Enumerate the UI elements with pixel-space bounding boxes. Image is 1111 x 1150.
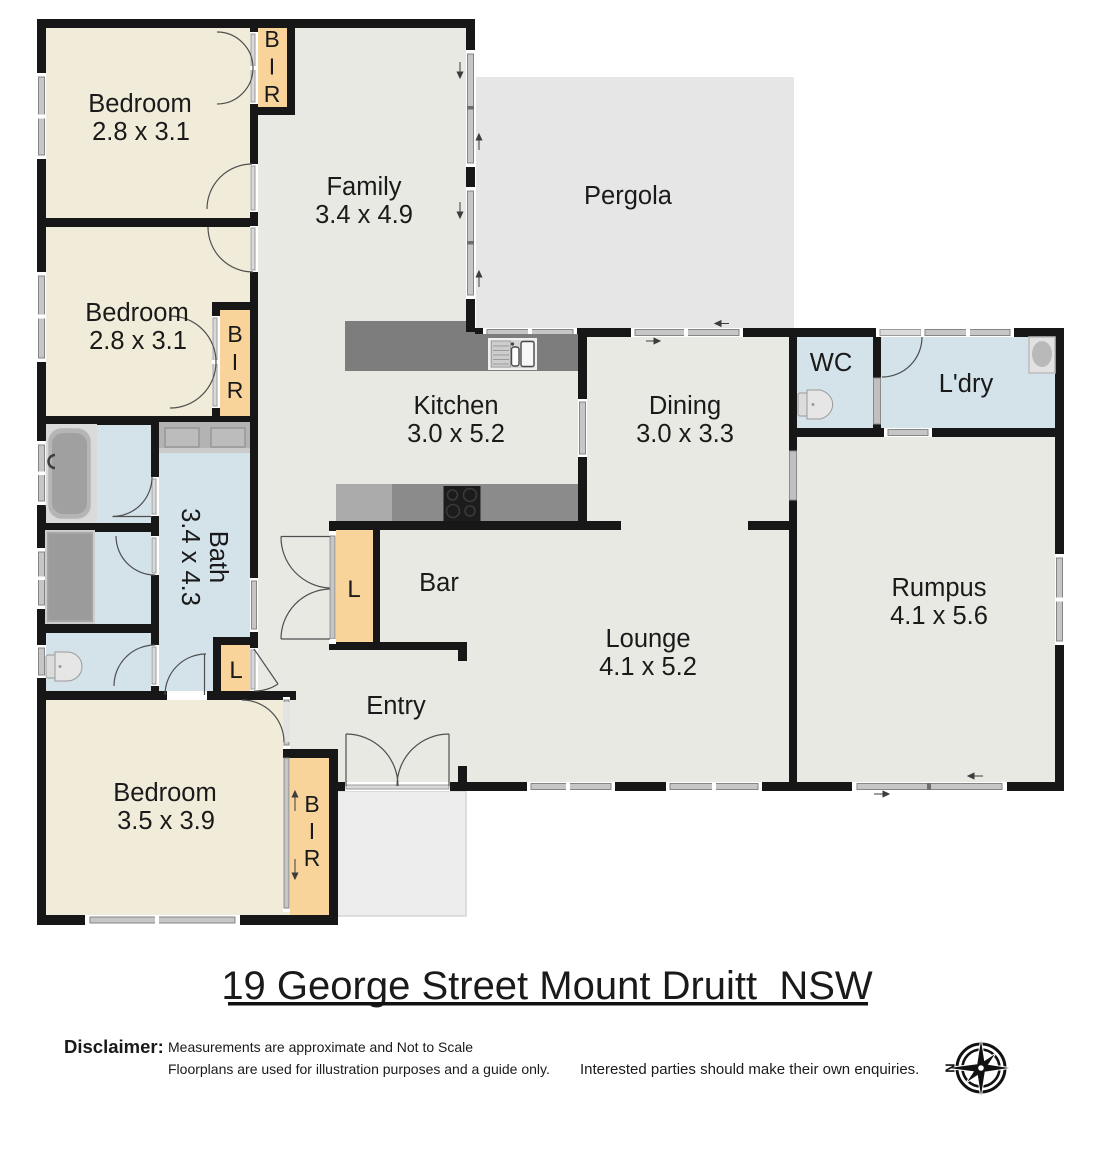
svg-text:3.4 x 4.9: 3.4 x 4.9 xyxy=(315,201,413,229)
svg-text:I: I xyxy=(309,818,315,844)
svg-text:Pergola: Pergola xyxy=(584,182,673,210)
svg-text:3.5 x 3.9: 3.5 x 3.9 xyxy=(117,807,215,835)
svg-text:3.4 x 4.3: 3.4 x 4.3 xyxy=(176,508,204,606)
svg-text:B: B xyxy=(304,791,319,817)
svg-text:WC: WC xyxy=(810,349,852,377)
svg-text:Dining: Dining xyxy=(649,392,721,420)
svg-text:Interested parties should make: Interested parties should make their own… xyxy=(580,1061,919,1078)
svg-text:R: R xyxy=(304,845,321,871)
svg-text:L: L xyxy=(229,657,242,684)
svg-text:19 George Street Mount Druitt: 19 George Street Mount Druitt NSW xyxy=(221,964,873,1008)
svg-text:B: B xyxy=(227,321,242,347)
svg-text:Bedroom: Bedroom xyxy=(85,299,188,327)
svg-text:2.8 x 3.1: 2.8 x 3.1 xyxy=(92,118,190,146)
svg-text:B: B xyxy=(264,26,279,52)
svg-text:L'dry: L'dry xyxy=(939,370,994,398)
svg-text:Measurements are approximate a: Measurements are approximate and Not to … xyxy=(168,1039,473,1055)
svg-text:Entry: Entry xyxy=(366,692,426,720)
svg-text:Bedroom: Bedroom xyxy=(88,90,191,118)
svg-text:Floorplans are used for illust: Floorplans are used for illustration pur… xyxy=(168,1061,550,1077)
svg-text:4.1 x 5.2: 4.1 x 5.2 xyxy=(599,653,697,681)
svg-text:I: I xyxy=(232,349,238,375)
svg-text:2.8 x 3.1: 2.8 x 3.1 xyxy=(89,327,187,355)
svg-text:Lounge: Lounge xyxy=(605,625,690,653)
svg-text:Family: Family xyxy=(326,173,401,201)
svg-text:Bar: Bar xyxy=(419,569,459,597)
svg-text:Kitchen: Kitchen xyxy=(413,392,498,420)
svg-text:R: R xyxy=(264,81,281,107)
svg-text:3.0 x 5.2: 3.0 x 5.2 xyxy=(407,420,505,448)
svg-text:L: L xyxy=(347,576,360,603)
svg-text:I: I xyxy=(269,54,275,80)
svg-text:Bath: Bath xyxy=(204,531,232,583)
svg-text:Bedroom: Bedroom xyxy=(113,779,216,807)
svg-text:R: R xyxy=(227,377,244,403)
svg-text:N: N xyxy=(943,1063,958,1072)
svg-text:3.0 x 3.3: 3.0 x 3.3 xyxy=(636,420,734,448)
svg-text:Rumpus: Rumpus xyxy=(892,574,987,602)
svg-text:4.1 x 5.6: 4.1 x 5.6 xyxy=(890,602,988,630)
svg-text:Disclaimer:: Disclaimer: xyxy=(64,1036,164,1057)
